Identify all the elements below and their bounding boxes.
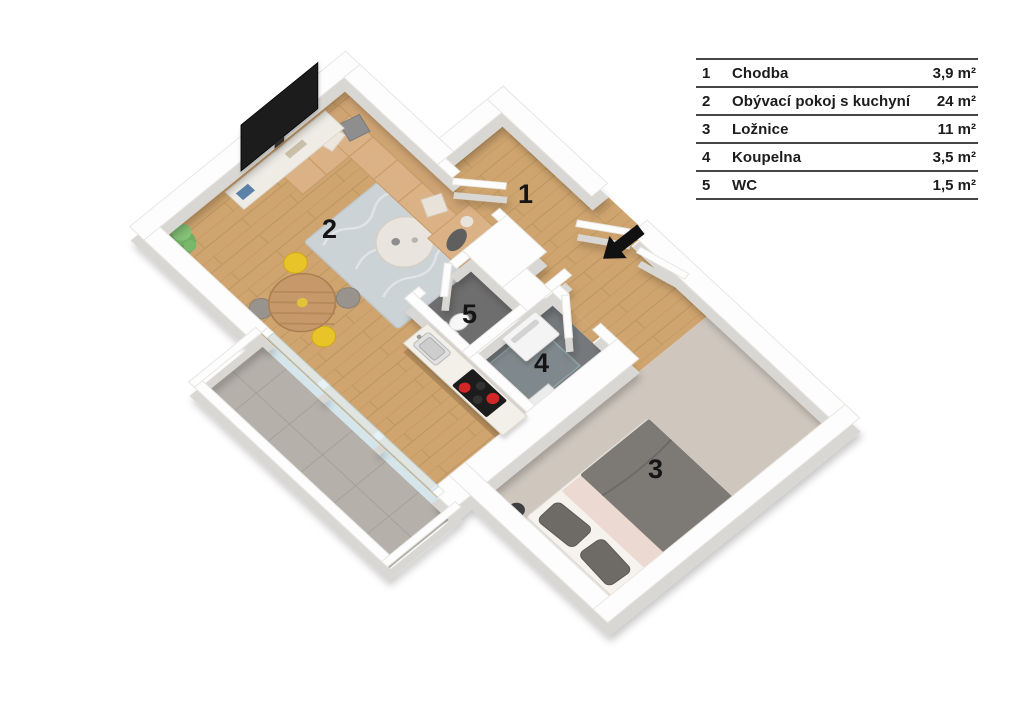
legend-room-name: WC	[732, 177, 925, 194]
room-label-bathroom: 4	[534, 348, 549, 378]
legend-room-name: Ložnice	[732, 121, 930, 138]
legend-room-number: 1	[696, 65, 724, 82]
legend-row-koupelna: 4 Koupelna 3,5 m²	[696, 142, 978, 170]
legend-room-number: 3	[696, 121, 724, 138]
legend-room-number: 4	[696, 149, 724, 166]
legend-row-chodba: 1 Chodba 3,9 m²	[696, 58, 978, 86]
legend-room-name: Chodba	[732, 65, 925, 82]
room-label-wc: 5	[462, 299, 477, 329]
legend-room-name: Obývací pokoj s kuchyní	[732, 93, 929, 110]
legend-room-number: 2	[696, 93, 724, 110]
legend-room-area: 3,9 m²	[933, 65, 978, 82]
legend-table: 1 Chodba 3,9 m² 2 Obývací pokoj s kuchyn…	[696, 58, 978, 200]
room-label-bedroom: 3	[648, 454, 663, 484]
legend-room-name: Koupelna	[732, 149, 925, 166]
legend-row-loznice: 3 Ložnice 11 m²	[696, 114, 978, 142]
legend-row-obyvaci-pokoj: 2 Obývací pokoj s kuchyní 24 m²	[696, 86, 978, 114]
legend-room-number: 5	[696, 177, 724, 194]
legend-room-area: 11 m²	[938, 121, 978, 138]
legend-row-wc: 5 WC 1,5 m²	[696, 170, 978, 200]
room-label-hallway: 1	[518, 179, 533, 209]
legend-room-area: 3,5 m²	[933, 149, 978, 166]
legend-room-area: 24 m²	[937, 93, 978, 110]
room-label-living: 2	[322, 214, 337, 244]
legend-room-area: 1,5 m²	[933, 177, 978, 194]
